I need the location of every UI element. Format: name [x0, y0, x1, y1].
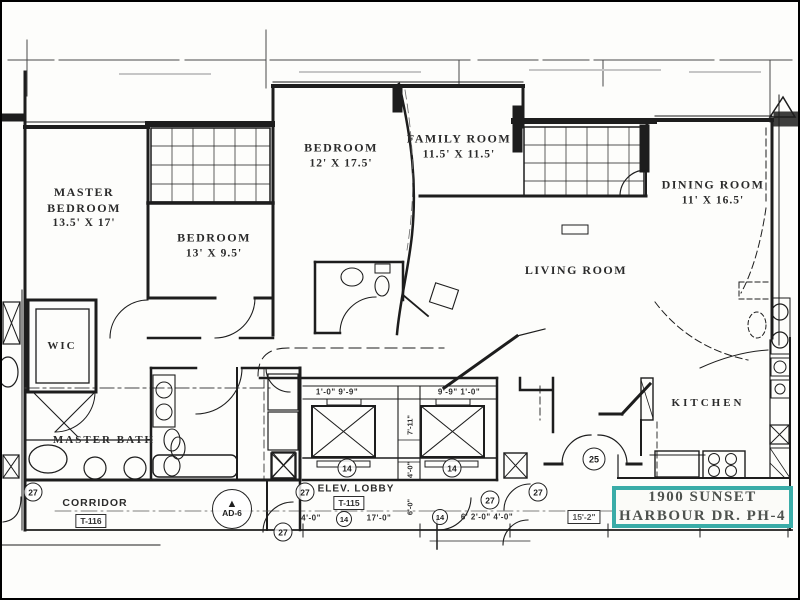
room-dims: 13.5' X 17': [36, 216, 132, 231]
room-name: CORRIDOR: [62, 497, 127, 511]
dim-shaft-v3: 6'-0": [406, 499, 415, 515]
address-line-1: 1900 SUNSET: [648, 488, 757, 507]
room-label-kitchen: KITCHEN: [672, 396, 745, 410]
room-name: FAMILY ROOM: [407, 132, 511, 148]
dim-shaft-depth: 7'-11": [406, 415, 415, 435]
terrace-grid-left: [148, 124, 273, 203]
elevator-marker-14: 14: [338, 459, 357, 478]
dining-dashed-elements: [739, 97, 795, 338]
room-label-master-bedroom: MASTER BEDROOM 13.5' X 17': [36, 185, 132, 231]
door-marker-27: 27: [481, 491, 500, 510]
room-name: LIVING ROOM: [525, 263, 627, 279]
door-marker-27: 27: [296, 483, 315, 502]
door-marker-27: 27: [274, 523, 293, 542]
door-marker-27: 27: [529, 483, 548, 502]
room-name: KITCHEN: [672, 396, 745, 410]
dim-shaft-v2: 4'-0": [406, 462, 415, 478]
kitchen-fixtures: [600, 112, 798, 478]
room-label-master-bath: MASTER BATH: [53, 433, 155, 447]
room-label-dining-room: DINING ROOM 11' X 16.5': [662, 178, 765, 209]
elevator-marker-14: 14: [443, 459, 462, 478]
room-label-bedroom-small: BEDROOM 13' X 9.5': [177, 231, 251, 262]
room-dims: 13' X 9.5': [177, 246, 251, 261]
room-name: WIC: [47, 339, 76, 353]
room-name: DINING ROOM: [662, 178, 765, 194]
terrace-grid-right: [513, 106, 654, 234]
room-label-elev-lobby: ELEV. LOBBY: [318, 483, 395, 496]
center-bathroom: [315, 262, 459, 333]
room-label-corridor: CORRIDOR: [62, 497, 127, 511]
room-name: MASTER BEDROOM: [36, 185, 132, 216]
dim-elev-left: 1'-0" 9'-9": [316, 388, 358, 397]
floorplan-page: MASTER BEDROOM 13.5' X 17' BEDROOM 13' X…: [0, 0, 800, 600]
room-label-wic: WIC: [47, 339, 76, 353]
room-label-family-room: FAMILY ROOM 11.5' X 11.5': [407, 132, 511, 163]
dim-box-15-2: 15'-2": [567, 510, 600, 524]
room-name: BEDROOM: [304, 141, 378, 157]
ad6-label: AD-6: [222, 509, 242, 518]
dim-marker-14: 14: [432, 509, 448, 525]
ad6-marker: ▲ AD-6: [212, 489, 252, 529]
dim-elev-right: 9'-9" 1'-0": [438, 388, 480, 397]
exterior-walls: [0, 72, 792, 545]
unit-tag-t116: T-116: [75, 514, 106, 528]
second-bath-fixtures: [151, 368, 300, 480]
room-dims: 11.5' X 11.5': [407, 147, 511, 162]
left-balcony-strip: [0, 114, 25, 530]
dim-row-b: 17'-0": [367, 514, 392, 523]
dim-row-c: 6' 2'-0" 4'-0": [461, 513, 513, 522]
dim-marker-14: 14: [336, 511, 352, 527]
address-line-2: HARBOUR DR. PH-4: [619, 507, 786, 526]
room-dims: 11' X 16.5': [662, 193, 765, 208]
unit-tag-t115: T-115: [333, 496, 364, 510]
entry-marker-25: 25: [583, 448, 606, 471]
dim-row-a: 4'-0": [301, 514, 321, 523]
door-marker-27: 27: [24, 483, 43, 502]
room-name: ELEV. LOBBY: [318, 483, 395, 496]
address-title-box: 1900 SUNSET HARBOUR DR. PH-4: [612, 486, 793, 528]
entry-doors: [520, 378, 641, 464]
room-label-living-room: LIVING ROOM: [525, 263, 627, 279]
room-name: MASTER BATH: [53, 433, 155, 447]
room-label-bedroom-large: BEDROOM 12' X 17.5': [304, 141, 378, 172]
room-name: BEDROOM: [177, 231, 251, 247]
room-dims: 12' X 17.5': [304, 156, 378, 171]
